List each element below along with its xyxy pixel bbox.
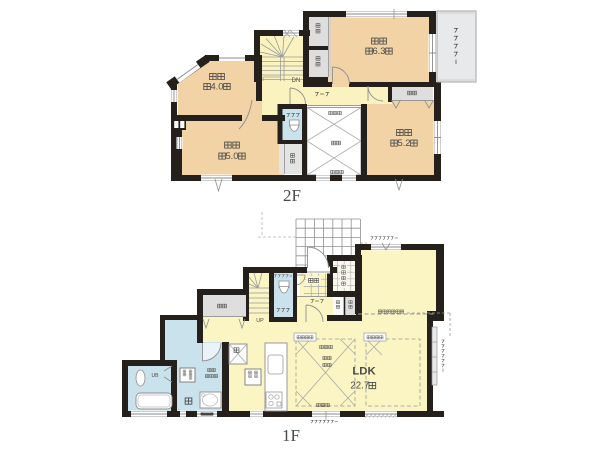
svg-text:UB: UB bbox=[152, 373, 160, 379]
svg-text:5.2: 5.2 bbox=[397, 137, 410, 148]
svg-text:2F: 2F bbox=[283, 186, 301, 205]
svg-text:22.7: 22.7 bbox=[350, 381, 369, 392]
svg-text:4.0: 4.0 bbox=[210, 81, 223, 92]
svg-text:DN: DN bbox=[292, 78, 301, 84]
svg-text:LDK: LDK bbox=[352, 366, 376, 378]
svg-text:UP: UP bbox=[256, 318, 264, 324]
svg-text:1F: 1F bbox=[282, 426, 300, 445]
svg-text:6.3: 6.3 bbox=[372, 45, 385, 56]
svg-text:5.0: 5.0 bbox=[225, 150, 238, 161]
